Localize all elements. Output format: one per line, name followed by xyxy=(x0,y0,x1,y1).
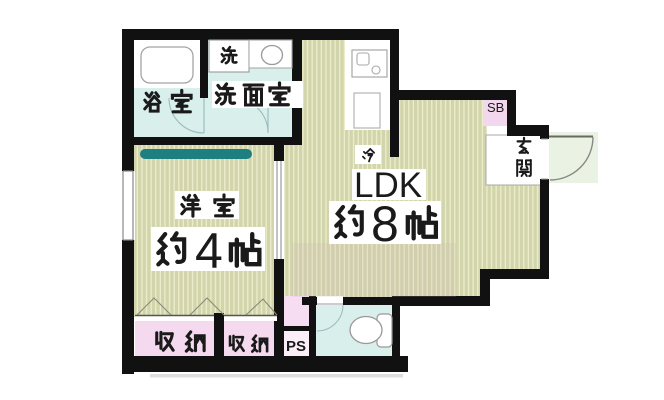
svg-text:8: 8 xyxy=(371,196,399,252)
svg-text:SB: SB xyxy=(487,100,504,115)
svg-text:PS: PS xyxy=(286,338,306,355)
svg-text:4: 4 xyxy=(195,223,223,279)
